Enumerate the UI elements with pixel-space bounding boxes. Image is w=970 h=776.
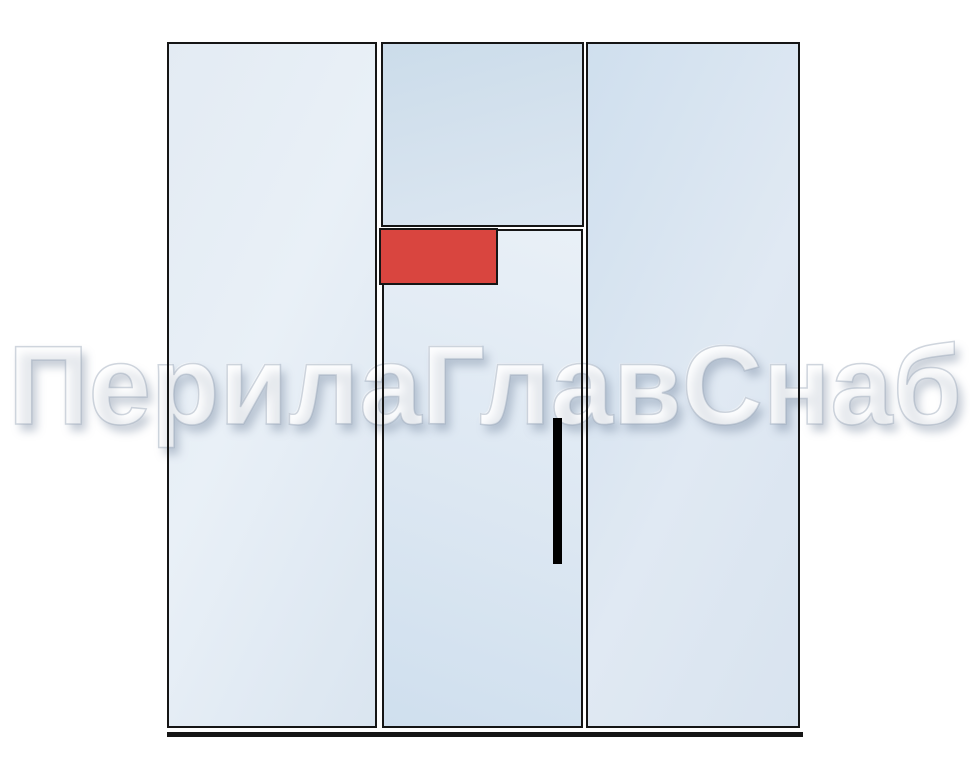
glass-partition-drawing: ПерилаГлавСнаб xyxy=(0,0,970,776)
right-fixed-panel xyxy=(586,42,800,728)
red-highlight-marker xyxy=(379,228,498,285)
top-transom-panel xyxy=(381,42,584,227)
door-handle xyxy=(553,418,562,564)
left-fixed-panel xyxy=(167,42,377,728)
floor-track xyxy=(167,732,803,737)
